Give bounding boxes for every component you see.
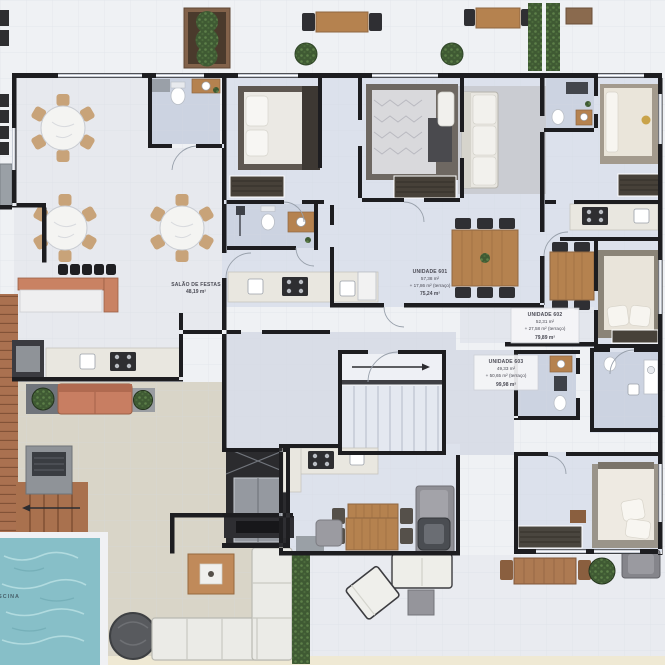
unit-602-label: UNIDADE 602 52,31 m² + 27,58 m² (terraço… bbox=[511, 308, 579, 343]
stove bbox=[582, 207, 608, 225]
chair bbox=[477, 218, 493, 229]
sink bbox=[80, 354, 95, 369]
table-plant bbox=[480, 253, 490, 263]
grey-lounge-seat bbox=[622, 550, 660, 578]
stove bbox=[308, 451, 334, 469]
round-table bbox=[160, 206, 204, 250]
cabinet-top bbox=[16, 346, 40, 372]
side-table-grey bbox=[408, 590, 434, 615]
dining-table bbox=[550, 252, 594, 300]
pillow bbox=[607, 305, 630, 328]
unit-603-label: UNIDADE 603 49,33 m² + 50,65 m² (terraço… bbox=[474, 355, 538, 390]
window bbox=[659, 94, 662, 144]
loveseat-white bbox=[392, 554, 452, 588]
window bbox=[238, 74, 298, 78]
chair bbox=[302, 13, 315, 31]
potted-plant bbox=[589, 558, 615, 584]
shower-tray bbox=[628, 384, 639, 395]
shower bbox=[152, 79, 170, 92]
chair bbox=[176, 194, 189, 206]
shower-head bbox=[236, 206, 245, 215]
bar-stool bbox=[70, 264, 80, 275]
headboard bbox=[302, 86, 320, 170]
unit-601-total: 75,24 m² bbox=[420, 291, 440, 297]
sofa-601 bbox=[462, 92, 498, 188]
cushion bbox=[473, 126, 496, 155]
toilet bbox=[552, 110, 564, 125]
chair bbox=[57, 94, 70, 106]
nightstand bbox=[570, 510, 586, 523]
unit-603-terrace: + 50,65 m² (terraço) bbox=[486, 373, 527, 378]
vanity bbox=[644, 360, 658, 394]
terrace-table-2 bbox=[464, 8, 532, 28]
bedroom-602-b bbox=[598, 250, 660, 343]
floor-plan-image: PISCINA bbox=[0, 0, 665, 665]
potted-plant bbox=[32, 388, 54, 410]
cushion bbox=[473, 95, 496, 124]
toilet bbox=[604, 357, 616, 371]
chair bbox=[59, 194, 72, 206]
chair bbox=[369, 13, 382, 31]
chair bbox=[59, 250, 72, 262]
sink bbox=[634, 209, 649, 223]
wood-deck-strip bbox=[0, 294, 18, 540]
window bbox=[594, 550, 640, 554]
headboard bbox=[598, 462, 654, 469]
hedge-vertical bbox=[292, 554, 310, 664]
kitchen-601 bbox=[228, 272, 378, 302]
pool-label: PISCINA bbox=[0, 594, 20, 600]
chair bbox=[455, 218, 471, 229]
chair bbox=[464, 9, 475, 26]
chair bbox=[455, 287, 471, 298]
stove bbox=[110, 352, 136, 371]
wardrobe bbox=[612, 330, 658, 343]
toilet bbox=[554, 396, 566, 411]
pillow bbox=[438, 92, 454, 126]
chair bbox=[57, 150, 70, 162]
window bbox=[372, 74, 438, 78]
dining-602 bbox=[550, 242, 594, 310]
wood-bench bbox=[566, 8, 592, 24]
wardrobe bbox=[230, 176, 284, 197]
kitchen-counter-return bbox=[283, 448, 301, 492]
round-table bbox=[41, 106, 85, 150]
round-table bbox=[43, 206, 87, 250]
potted-plant bbox=[134, 391, 153, 410]
stove bbox=[282, 277, 308, 296]
stair-flight bbox=[342, 386, 442, 451]
grill-station bbox=[26, 446, 72, 494]
fridge bbox=[358, 272, 376, 300]
small-plant bbox=[213, 87, 219, 93]
unit-602-terrace: + 27,58 m² (terraço) bbox=[525, 326, 566, 331]
sink bbox=[248, 279, 263, 294]
chair bbox=[477, 287, 493, 298]
small-plant bbox=[585, 101, 591, 107]
pillow bbox=[246, 96, 268, 126]
pillow bbox=[629, 305, 651, 327]
window bbox=[536, 550, 586, 554]
chair bbox=[316, 520, 342, 546]
unit-603-private: 49,33 m² bbox=[497, 366, 516, 371]
pillow bbox=[246, 130, 268, 156]
coffee-table-wood bbox=[188, 554, 234, 594]
small-plant bbox=[305, 237, 311, 243]
floor-plan-svg: PISCINA bbox=[0, 0, 665, 665]
cushion bbox=[420, 490, 448, 519]
shower bbox=[566, 82, 588, 94]
window bbox=[598, 74, 644, 78]
pillow bbox=[620, 498, 645, 522]
bar-stool bbox=[94, 264, 104, 275]
stair-core bbox=[342, 354, 442, 451]
party-room-area: 48,19 m² bbox=[186, 289, 206, 295]
basin bbox=[647, 366, 654, 373]
plant-pot bbox=[441, 43, 463, 65]
wicker-hanging-chair bbox=[110, 613, 156, 659]
basin bbox=[202, 82, 210, 90]
mattress bbox=[372, 90, 436, 174]
bar-stool bbox=[58, 264, 68, 275]
chair bbox=[499, 218, 515, 229]
toilet bbox=[262, 214, 275, 230]
window bbox=[12, 128, 15, 170]
basin bbox=[557, 360, 565, 368]
chair bbox=[176, 250, 189, 262]
gold-lamp bbox=[642, 116, 651, 125]
chair bbox=[400, 528, 413, 544]
unit-602-total: 79,89 m² bbox=[535, 335, 555, 341]
window bbox=[156, 74, 204, 78]
cushion bbox=[473, 157, 496, 185]
bar-stool bbox=[82, 264, 92, 275]
unit-602-private: 52,31 m² bbox=[536, 319, 555, 324]
dining-601 bbox=[452, 218, 518, 298]
toilet-tank bbox=[171, 82, 185, 88]
window bbox=[659, 464, 662, 522]
armchair-dark bbox=[418, 518, 450, 550]
kitchen-602 bbox=[570, 204, 658, 230]
basin bbox=[580, 113, 587, 120]
unit-601-name: UNIDADE 601 bbox=[413, 269, 448, 275]
pillow bbox=[606, 92, 618, 152]
pool-water bbox=[0, 538, 100, 665]
plant-pot bbox=[295, 43, 317, 65]
salmon-sofa bbox=[58, 384, 132, 414]
chair bbox=[400, 508, 413, 524]
unit-601-private: 57,38 m² bbox=[421, 276, 440, 281]
shower bbox=[554, 376, 567, 391]
unit-602-name: UNIDADE 602 bbox=[528, 312, 563, 318]
terrace-table-1 bbox=[302, 12, 382, 32]
sink bbox=[340, 281, 355, 296]
window bbox=[659, 260, 662, 314]
party-room-name: SALÃO DE FESTAS bbox=[171, 281, 221, 288]
unit-603-total: 99,98 m² bbox=[496, 382, 516, 388]
planter-box bbox=[184, 8, 230, 68]
unit-601-terrace: + 17,86 m² (terraço) bbox=[410, 283, 451, 288]
wood-table bbox=[514, 558, 576, 584]
pillow bbox=[625, 518, 651, 539]
toilet bbox=[171, 88, 185, 105]
chair bbox=[500, 560, 513, 580]
unit-603-name: UNIDADE 603 bbox=[489, 359, 524, 365]
chair bbox=[574, 242, 590, 252]
window bbox=[58, 74, 142, 78]
chair bbox=[499, 287, 515, 298]
tv-screen bbox=[236, 521, 282, 533]
bar-stool bbox=[106, 264, 116, 275]
stair-rail bbox=[342, 380, 442, 385]
ac-unit bbox=[0, 164, 12, 206]
toilet-tank bbox=[261, 206, 275, 212]
outdoor-dining bbox=[316, 518, 450, 550]
chair bbox=[552, 242, 568, 252]
